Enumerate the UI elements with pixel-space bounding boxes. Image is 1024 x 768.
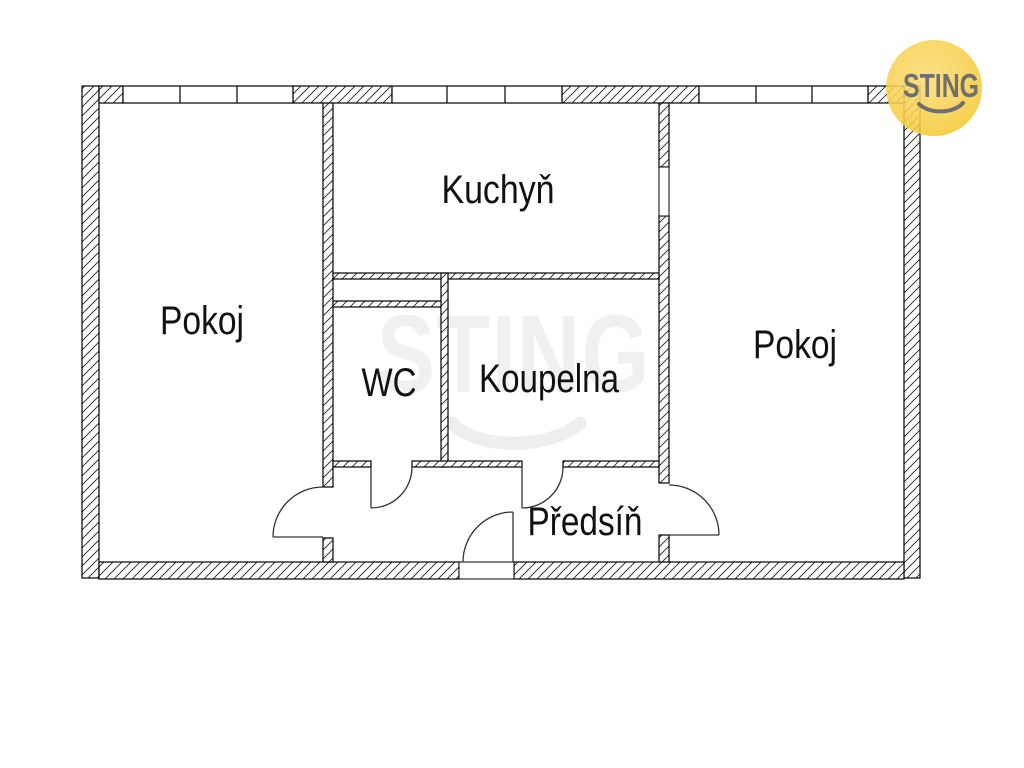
room-label-bathroom: Koupelna xyxy=(479,357,620,401)
wall-outer-bottom-seg1 xyxy=(99,562,459,579)
wall-hallway-top-seg2 xyxy=(412,461,522,467)
windows xyxy=(123,86,868,103)
room-label-left-pokoj: Pokoj xyxy=(160,299,244,343)
wall-outer-top-seg3 xyxy=(562,86,699,103)
sting-logo: STING xyxy=(886,40,982,136)
window-left xyxy=(123,86,293,103)
room-label-hallway: Předsíň xyxy=(528,500,643,544)
logo-text: STING xyxy=(903,67,979,104)
wall-left-room-divider-upper xyxy=(323,103,333,487)
wall-outer-top-seg1 xyxy=(99,86,123,103)
floorplan-canvas: STING xyxy=(0,0,1024,768)
wall-hallway-top-seg1 xyxy=(333,461,371,467)
wall-outer-top-seg2 xyxy=(293,86,392,103)
kitchen-passage-opening xyxy=(659,167,669,216)
wall-hallway-top-seg3 xyxy=(563,461,659,467)
window-right xyxy=(699,86,868,103)
wall-outer-right xyxy=(904,86,920,578)
wall-wc-bathroom-divider xyxy=(441,273,448,467)
wall-left-room-divider-lower xyxy=(323,538,333,562)
wall-right-room-divider-mid xyxy=(659,216,669,483)
entrance-opening xyxy=(459,562,514,579)
wall-outer-bottom-seg2 xyxy=(514,562,904,579)
window-kitchen xyxy=(392,86,562,103)
wall-kitchen-bottom xyxy=(333,273,659,279)
wall-niche-bottom xyxy=(333,301,448,307)
wall-right-room-divider-top xyxy=(659,103,669,167)
wall-outer-left xyxy=(82,86,99,578)
room-label-kitchen: Kuchyň xyxy=(442,168,555,212)
room-label-right-pokoj: Pokoj xyxy=(753,323,837,367)
room-label-wc: WC xyxy=(362,361,417,405)
wall-right-room-divider-bottom xyxy=(659,535,669,562)
